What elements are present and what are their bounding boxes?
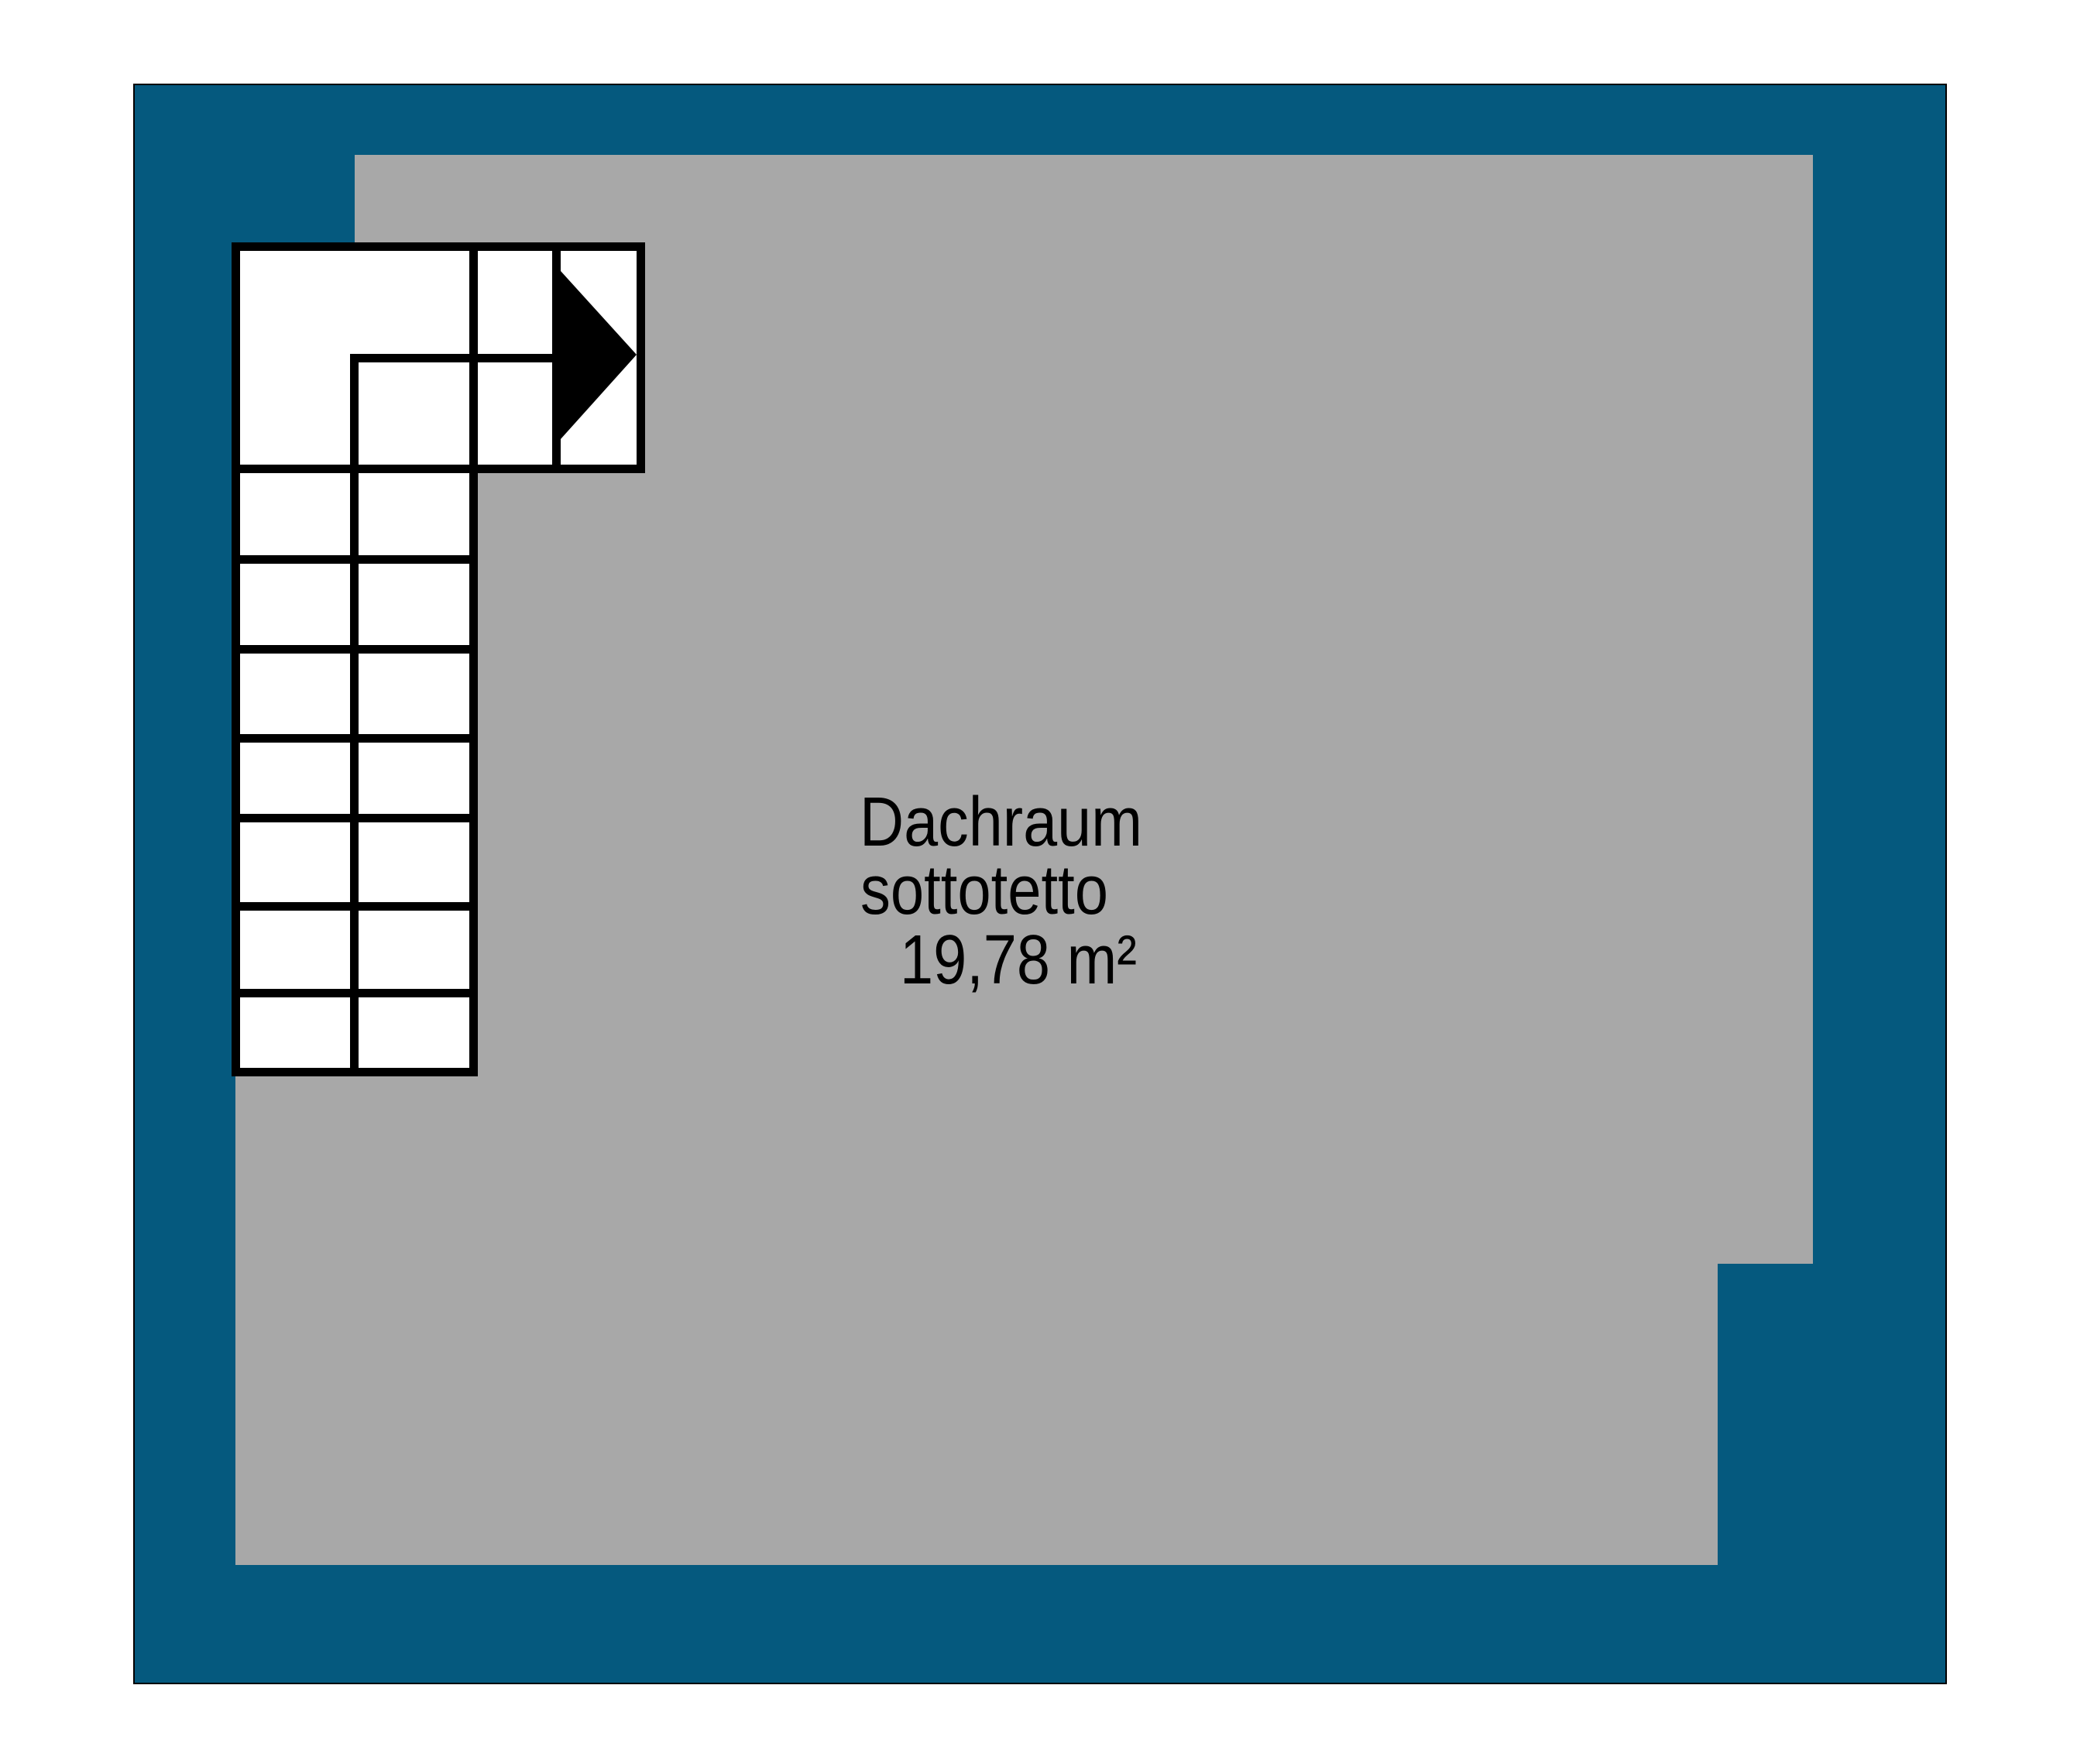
svg-text:Dachraum: Dachraum (860, 784, 1142, 861)
svg-text:sottotetto: sottotetto (860, 852, 1108, 929)
svg-text:19,78 m²: 19,78 m² (900, 921, 1137, 999)
